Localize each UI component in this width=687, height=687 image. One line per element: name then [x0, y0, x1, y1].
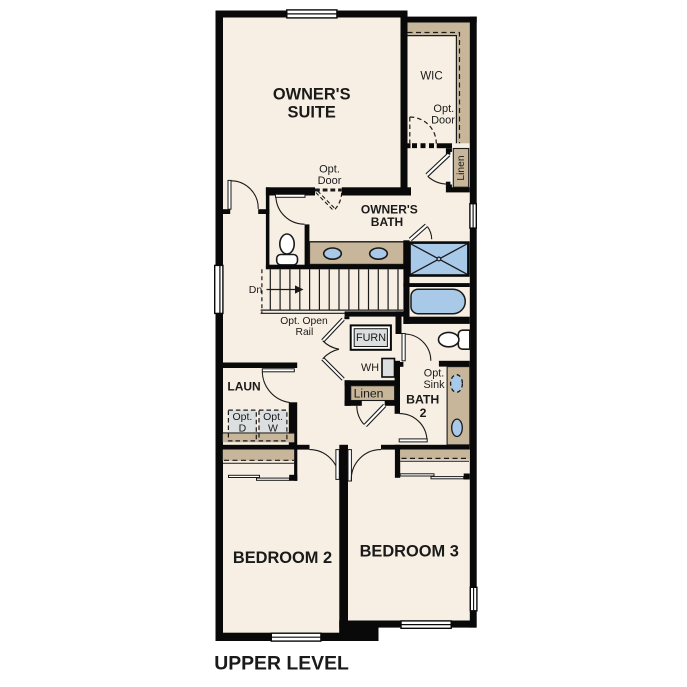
svg-text:Rail: Rail: [296, 327, 314, 338]
svg-text:BEDROOM 3: BEDROOM 3: [360, 543, 459, 561]
svg-text:BATH: BATH: [371, 215, 403, 229]
svg-text:Opt.: Opt.: [319, 164, 340, 176]
svg-text:Linen: Linen: [456, 155, 467, 180]
svg-text:W: W: [268, 422, 278, 434]
svg-text:Door: Door: [318, 175, 342, 187]
svg-text:WIC: WIC: [420, 71, 442, 83]
svg-text:D: D: [239, 422, 247, 434]
svg-text:BATH: BATH: [406, 393, 439, 407]
svg-text:Opt.: Opt.: [433, 103, 454, 115]
svg-text:2: 2: [420, 406, 427, 420]
svg-text:LAUN: LAUN: [227, 379, 260, 393]
svg-text:Opt. Open: Opt. Open: [280, 316, 328, 327]
svg-text:Opt.: Opt.: [263, 411, 283, 423]
svg-text:Linen: Linen: [354, 386, 384, 400]
svg-text:Opt.: Opt.: [424, 368, 444, 380]
svg-text:Sink: Sink: [423, 379, 445, 391]
svg-text:WH: WH: [361, 362, 379, 374]
svg-text:FURN: FURN: [356, 332, 386, 344]
svg-text:UPPER LEVEL: UPPER LEVEL: [214, 653, 349, 675]
svg-text:OWNER'S: OWNER'S: [273, 85, 351, 103]
svg-text:Dn: Dn: [249, 284, 263, 296]
svg-text:BEDROOM 2: BEDROOM 2: [233, 549, 332, 567]
svg-text:SUITE: SUITE: [288, 103, 336, 121]
svg-text:Door: Door: [431, 115, 455, 127]
svg-text:Opt.: Opt.: [232, 411, 252, 423]
